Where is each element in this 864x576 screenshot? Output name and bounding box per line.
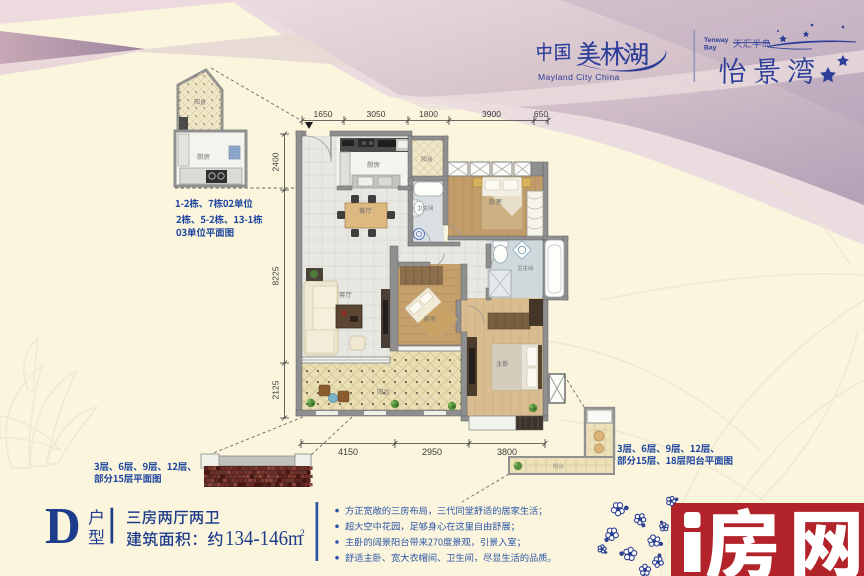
svg-text:1800: 1800 bbox=[419, 109, 438, 119]
svg-text:3050: 3050 bbox=[367, 109, 386, 119]
svg-text:2125: 2125 bbox=[271, 380, 281, 399]
svg-text:4150: 4150 bbox=[338, 447, 358, 457]
svg-text:2950: 2950 bbox=[422, 447, 442, 457]
svg-text:Tenway: Tenway bbox=[704, 37, 729, 44]
svg-text:1650: 1650 bbox=[314, 109, 333, 119]
svg-text:134-146m: 134-146m bbox=[225, 527, 303, 550]
svg-text:650: 650 bbox=[534, 109, 548, 119]
svg-text:3800: 3800 bbox=[497, 447, 517, 457]
svg-text:2: 2 bbox=[300, 529, 305, 539]
svg-text:2400: 2400 bbox=[271, 152, 281, 171]
svg-text:D: D bbox=[45, 497, 81, 554]
svg-text:Mayland City China: Mayland City China bbox=[538, 72, 620, 82]
svg-text:8225: 8225 bbox=[271, 266, 281, 285]
svg-text:3900: 3900 bbox=[482, 109, 501, 119]
svg-text:Bay: Bay bbox=[704, 45, 717, 52]
